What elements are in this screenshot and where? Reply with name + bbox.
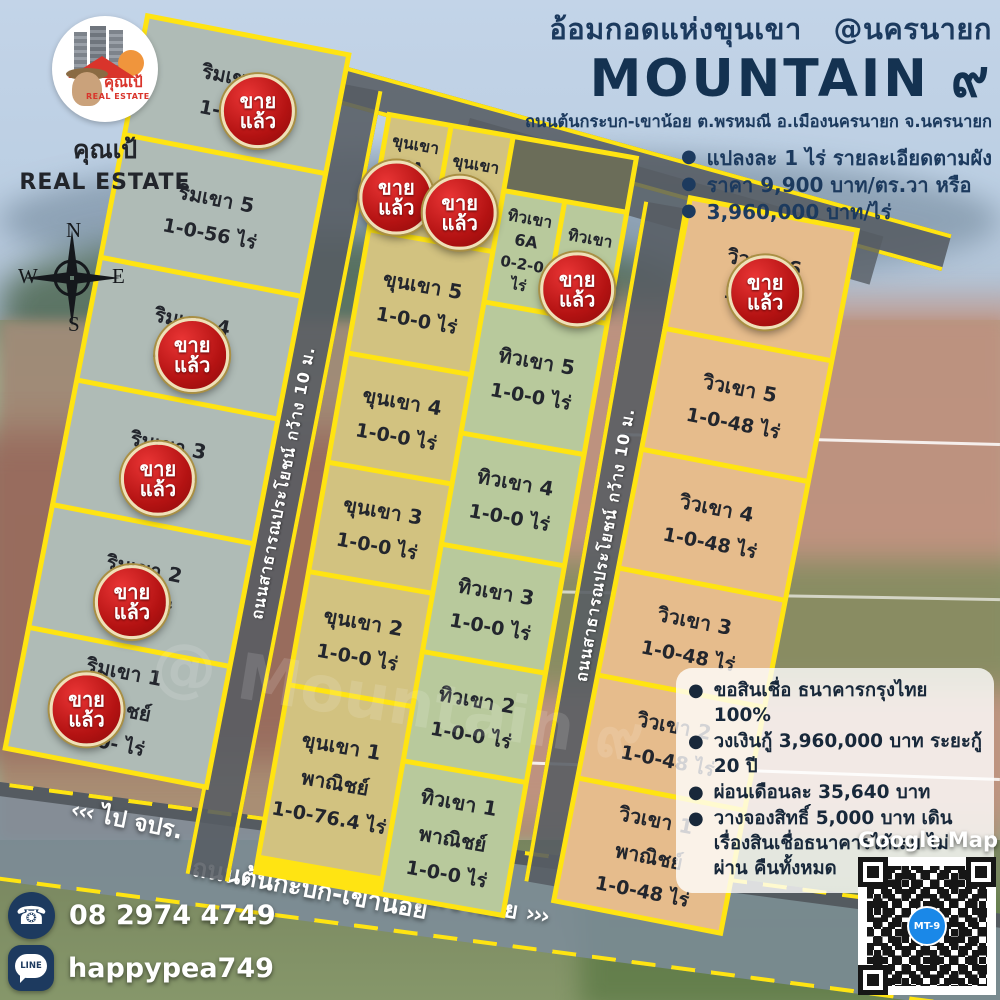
- qr-code: MT-9: [858, 857, 996, 995]
- sold-badge-text: ขาย: [240, 91, 277, 111]
- phone-icon: ☎: [8, 892, 55, 939]
- sold-badge: ขาย แล้ว: [50, 672, 124, 746]
- price-bullet: ● ราคา 9,900 บาท/ตร.วา หรือ: [681, 172, 992, 199]
- plot-khunkhao-4: ขุนเขา 4 1-0-0 ไร่: [331, 356, 468, 481]
- plot-thiwkhao-3: ทิวเขา 3 1-0-0 ไร่: [425, 547, 562, 670]
- sold-badge: ขาย แล้ว: [121, 442, 195, 516]
- qr-finder-icon: [858, 857, 888, 887]
- logo-text-en: REAL ESTATE: [86, 92, 150, 101]
- finance-bullet: ● ผ่อนเดือนละ 35,640 บาท: [688, 781, 982, 806]
- plot-thiwkhao-5: ทิวเขา 5 1-0-0 ไร่: [463, 305, 604, 452]
- sold-badge: ขาย แล้ว: [95, 565, 169, 639]
- bullet-icon: ●: [681, 199, 697, 226]
- sold-badge-text: แล้ว: [114, 602, 150, 622]
- brand-name-en: REAL ESTATE: [10, 170, 200, 195]
- price-bullet-text: ราคา 9,900 บาท/ตร.วา หรือ: [707, 172, 972, 199]
- brand-logo-icon: คุณเป้ REAL ESTATE: [52, 16, 158, 122]
- line-row: LINE happypea749: [8, 945, 276, 991]
- finance-bullet: ● ขอสินเชื่อ ธนาคารกรุงไทย 100%: [688, 679, 982, 729]
- sold-badge-text: ขาย: [140, 458, 177, 478]
- qr-center-chip: MT-9: [907, 906, 947, 946]
- finance-bullet-text: วงเงินกู้ 3,960,000 บาท ระยะกู้ 20 ปี: [714, 730, 982, 780]
- sold-badge: ขาย แล้ว: [728, 255, 802, 329]
- sold-badge: ขาย แล้ว: [540, 252, 614, 326]
- bullet-icon: ●: [688, 781, 704, 806]
- header: อ้อมกอดแห่งขุนเขา @นครนายก MOUNTAIN ๙ ถน…: [430, 6, 992, 226]
- plot-type: พาณิชย์: [416, 817, 489, 860]
- sold-badge-text: แล้ว: [68, 709, 104, 729]
- bullet-icon: ●: [681, 145, 697, 172]
- sold-badge-text: แล้ว: [378, 198, 414, 218]
- left-arrows-icon: ‹‹‹: [68, 797, 95, 827]
- right-arrows-icon: ›››: [524, 900, 550, 929]
- sold-badge-text: ขาย: [559, 269, 596, 289]
- sold-badge-text: ขาย: [746, 272, 783, 292]
- line-icon: LINE: [8, 945, 54, 991]
- compass-south-label: S: [68, 312, 80, 337]
- sold-badge-text: ขาย: [68, 689, 105, 709]
- google-map-block: Google Map MT-9: [858, 828, 998, 995]
- plot-thiwkhao-1: ทิวเขา 1 พาณิชย์ 1-0-0 ไร่: [382, 764, 523, 913]
- compass-north-label: N: [66, 218, 81, 243]
- plot-area: 1-0-76.4 ไร่: [269, 793, 388, 843]
- price-bullet-text: แปลงละ 1 ไร่ รายละเอียดตามผัง: [707, 145, 992, 172]
- sold-badge-text: ขาย: [174, 335, 211, 355]
- sold-badge-text: แล้ว: [559, 289, 595, 309]
- finance-bullet: ● วงเงินกู้ 3,960,000 บาท ระยะกู้ 20 ปี: [688, 730, 982, 780]
- sold-badge-text: ขาย: [114, 582, 151, 602]
- brand-name-thai: คุณเป้: [10, 130, 200, 170]
- compass-rose: N S W E: [20, 220, 124, 336]
- line-id: happypea749: [68, 953, 274, 984]
- line-bubble-icon: LINE: [15, 954, 47, 978]
- price-bullet: ● 3,960,000 บาท/ไร่: [681, 199, 992, 226]
- compass-west-label: W: [18, 264, 38, 289]
- price-bullets: ● แปลงละ 1 ไร่ รายละเอียดตามผัง ● ราคา 9…: [681, 145, 992, 226]
- sold-badge-text: ขาย: [378, 177, 415, 197]
- sold-badge: ขาย แล้ว: [155, 318, 229, 392]
- sold-badge-text: แล้ว: [140, 479, 176, 499]
- header-tagline: อ้อมกอดแห่งขุนเขา @นครนายก: [430, 6, 992, 52]
- finance-bullet-text: ขอสินเชื่อ ธนาคารกรุงไทย 100%: [714, 679, 982, 729]
- project-name: MOUNTAIN ๙: [430, 52, 992, 107]
- plot-khunkhao-3: ขุนเขา 3 1-0-0 ไร่: [311, 465, 448, 590]
- bullet-icon: ●: [688, 679, 704, 729]
- contact-block: ☎ 08 2974 4749 LINE happypea749: [8, 892, 276, 997]
- google-map-title: Google Map: [858, 828, 998, 852]
- qr-finder-icon: [966, 857, 996, 887]
- sold-badge-text: แล้ว: [240, 111, 276, 131]
- qr-finder-icon: [858, 965, 888, 995]
- plot-type: พาณิชย์: [299, 761, 372, 804]
- phone-number: 08 2974 4749: [69, 900, 276, 931]
- bullet-icon: ●: [688, 730, 704, 780]
- sold-badge: ขาย แล้ว: [221, 74, 295, 148]
- plot-wiwkhao-5: วิวเขา 5 1-0-48 ไร่: [644, 331, 828, 478]
- brand-logo-block: คุณเป้ REAL ESTATE คุณเป้ REAL ESTATE: [10, 16, 200, 195]
- finance-bullet-text: ผ่อนเดือนละ 35,640 บาท: [714, 781, 931, 806]
- plot-thiwkhao-4: ทิวเขา 4 1-0-0 ไร่: [444, 436, 581, 563]
- project-address: ถนนต้นกระบก-เขาน้อย ต.พรหมณี อ.เมืองนครน…: [430, 109, 992, 135]
- plot-khunkhao-2: ขุนเขา 2 1-0-0 ไร่: [292, 574, 430, 703]
- price-bullet-text: 3,960,000 บาท/ไร่: [707, 199, 892, 226]
- plot-thiwkhao-2: ทิวเขา 2 1-0-0 ไร่: [406, 654, 543, 779]
- compass-east-label: E: [112, 264, 125, 289]
- bullet-icon: ●: [688, 807, 704, 882]
- plot-khunkhao-1: ขุนเขา 1 พาณิชย์ 1-0-76.4 ไร่: [261, 688, 409, 876]
- sold-badge-text: แล้ว: [174, 355, 210, 375]
- phone-row: ☎ 08 2974 4749: [8, 892, 276, 939]
- bullet-icon: ●: [681, 172, 697, 199]
- logo-text-thai: คุณเป้: [104, 70, 143, 94]
- sold-badge: ขาย แล้ว: [359, 161, 433, 235]
- plot-khunkhao-5: ขุนเขา 5 1-0-0 ไร่: [350, 233, 490, 372]
- price-bullet: ● แปลงละ 1 ไร่ รายละเอียดตามผัง: [681, 145, 992, 172]
- sold-badge-text: แล้ว: [747, 292, 783, 312]
